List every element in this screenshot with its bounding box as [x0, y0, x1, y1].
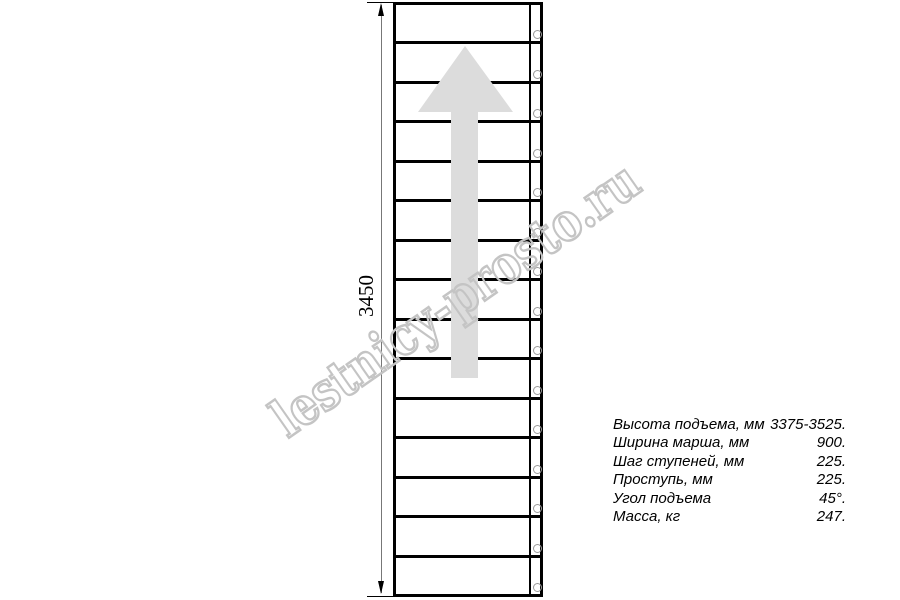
spec-label: Угол подъема — [613, 490, 711, 508]
fastener-circle-icon — [533, 346, 542, 355]
spec-row-angle: Угол подъема 45°. — [613, 490, 846, 508]
spec-label: Ширина марша, мм — [613, 434, 749, 452]
tread-line — [393, 120, 543, 123]
dimension-arrow-down-icon — [378, 581, 384, 594]
spec-row-step: Шаг ступеней, мм 225. — [613, 453, 846, 471]
spec-label: Высота подъема, мм — [613, 416, 765, 434]
tread-line — [393, 555, 543, 558]
dimension-arrow-up-icon — [378, 3, 384, 16]
fastener-circle-icon — [533, 30, 542, 39]
spec-row-height: Высота подъема, мм 3375-3525. — [613, 416, 846, 434]
tread-line — [393, 41, 543, 44]
stair-outline — [393, 2, 543, 597]
tread-line — [393, 397, 543, 400]
fastener-circle-icon — [533, 583, 542, 592]
spec-value: 247. — [817, 508, 846, 526]
tread-line — [393, 357, 543, 360]
drawing-canvas: 3450 lestnicy-prosto.ru Высота подъема, … — [0, 0, 900, 600]
tread-line — [393, 515, 543, 518]
fastener-circle-icon — [533, 465, 542, 474]
tread-line — [393, 278, 543, 281]
tread-line — [393, 239, 543, 242]
fastener-circle-icon — [533, 544, 542, 553]
tread-line — [393, 436, 543, 439]
extension-line-bottom — [367, 596, 394, 597]
fastener-circle-icon — [533, 149, 542, 158]
tread-line — [393, 199, 543, 202]
fastener-circle-icon — [533, 425, 542, 434]
dimension-label: 3450 — [354, 256, 378, 336]
dimension-line — [381, 5, 382, 593]
spec-value: 900. — [817, 434, 846, 452]
fastener-circle-icon — [533, 307, 542, 316]
spec-label: Масса, кг — [613, 508, 680, 526]
specs-table: Высота подъема, мм 3375-3525. Ширина мар… — [613, 416, 846, 526]
spec-row-mass: Масса, кг 247. — [613, 508, 846, 526]
fastener-circle-icon — [533, 504, 542, 513]
tread-line — [393, 476, 543, 479]
fastener-circle-icon — [533, 188, 542, 197]
spec-value: 3375-3525. — [770, 416, 846, 434]
fastener-circle-icon — [533, 109, 542, 118]
spec-value: 225. — [817, 471, 846, 489]
tread-line — [393, 318, 543, 321]
fastener-circle-icon — [533, 267, 542, 276]
tread-line — [393, 81, 543, 84]
spec-label: Шаг ступеней, мм — [613, 453, 744, 471]
fastener-circle-icon — [533, 70, 542, 79]
stringer-separator-line — [529, 2, 531, 597]
tread-line — [393, 160, 543, 163]
spec-value: 225. — [817, 453, 846, 471]
spec-row-width: Ширина марша, мм 900. — [613, 434, 846, 452]
spec-value: 45°. — [819, 490, 846, 508]
fastener-circle-icon — [533, 228, 542, 237]
spec-label: Проступь, мм — [613, 471, 713, 489]
spec-row-going: Проступь, мм 225. — [613, 471, 846, 489]
fastener-circle-icon — [533, 386, 542, 395]
